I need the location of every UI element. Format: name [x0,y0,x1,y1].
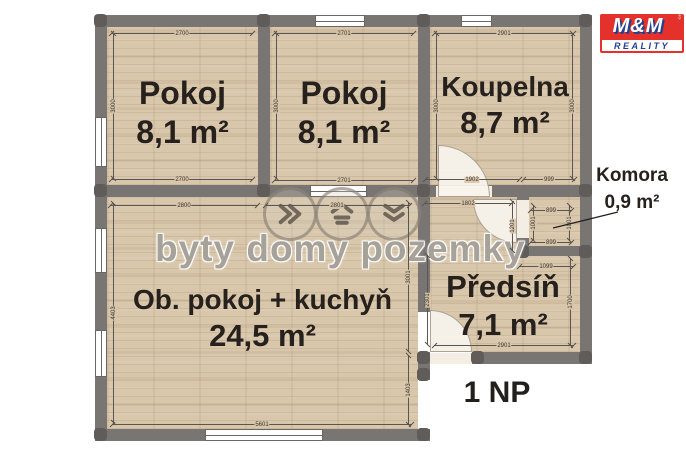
floor-level-label: 1 NP [442,376,552,410]
dimension-line: 2700 [111,33,253,34]
dimension-line: 5601 [112,424,412,425]
mm-reality-logo: M&M HOLDING REALITY [600,14,684,53]
dimension-line: 2800 [110,205,258,206]
komora-leader-line [548,206,622,232]
dimension-line: 1201 [512,201,513,251]
dimension-line: 1802 [424,203,512,204]
room-name: Komora [592,163,672,190]
dimension-label: 999 [543,177,555,183]
dimension-line: 2901 [434,345,574,346]
logo-holding-text: HOLDING [678,0,683,20]
room-area: 7,1 m² [428,306,578,344]
logo-mm-text: M&M [600,15,676,38]
dimension-label: 2700 [174,177,189,183]
room-name: Koupelna [424,70,586,104]
room-label-pokoj-2: Pokoj 8,1 m² [270,74,418,152]
dimension-label: 2700 [174,31,189,37]
dimension-label: 2801 [329,203,344,209]
dimension-label: 1902 [464,177,479,183]
dimension-line: 2901 [434,33,574,34]
dimension-line: 999 [523,179,575,180]
dimension-line: 2700 [111,179,253,180]
room-area: 8,1 m² [107,113,258,152]
dimension-line: 1902 [425,179,520,180]
dimension-label: 1201 [510,218,516,233]
logo-reality-band: REALITY [602,40,682,51]
dimension-line: 1099 [519,266,574,267]
room-area: 8,1 m² [270,113,418,152]
room-name: Ob. pokoj + kuchyň [107,283,418,317]
dimension-line: 899 [530,242,572,243]
room-label-predsin: Předsíň 7,1 m² [428,268,578,344]
room-label-pokoj-1: Pokoj 8,1 m² [107,74,258,152]
dimension-line: 2701 [274,33,414,34]
dimension-label: 2800 [176,203,191,209]
dimension-line: 2801 [265,205,410,206]
dimension-label: 2901 [496,343,511,349]
logo-reality-text: REALITY [614,41,670,51]
dimension-label: 1802 [460,201,475,207]
dimension-label: 1001 [531,215,537,230]
dimension-label: 5601 [254,422,269,428]
dimension-label: 2901 [496,31,511,37]
room-name: Pokoj [107,74,258,113]
room-area: 8,7 m² [424,104,586,142]
room-label-koupelna: Koupelna 8,7 m² [424,70,586,142]
room-label-living-room: Ob. pokoj + kuchyň 24,5 m² [107,283,418,355]
room-area: 24,5 m² [107,317,418,355]
floor-plan: byty domy pozemky 2700300027002701300027… [0,0,686,457]
room-name: Předsíň [428,268,578,306]
dimension-label: 2701 [336,31,351,37]
dimension-label: 1403 [406,382,412,397]
dimension-label: 899 [545,240,557,246]
room-name: Pokoj [270,74,418,113]
dimension-label: 2701 [336,178,351,184]
dimension-line: 1403 [408,355,409,425]
dimension-line: 1001 [533,205,534,241]
dimension-line: 2701 [274,180,414,181]
